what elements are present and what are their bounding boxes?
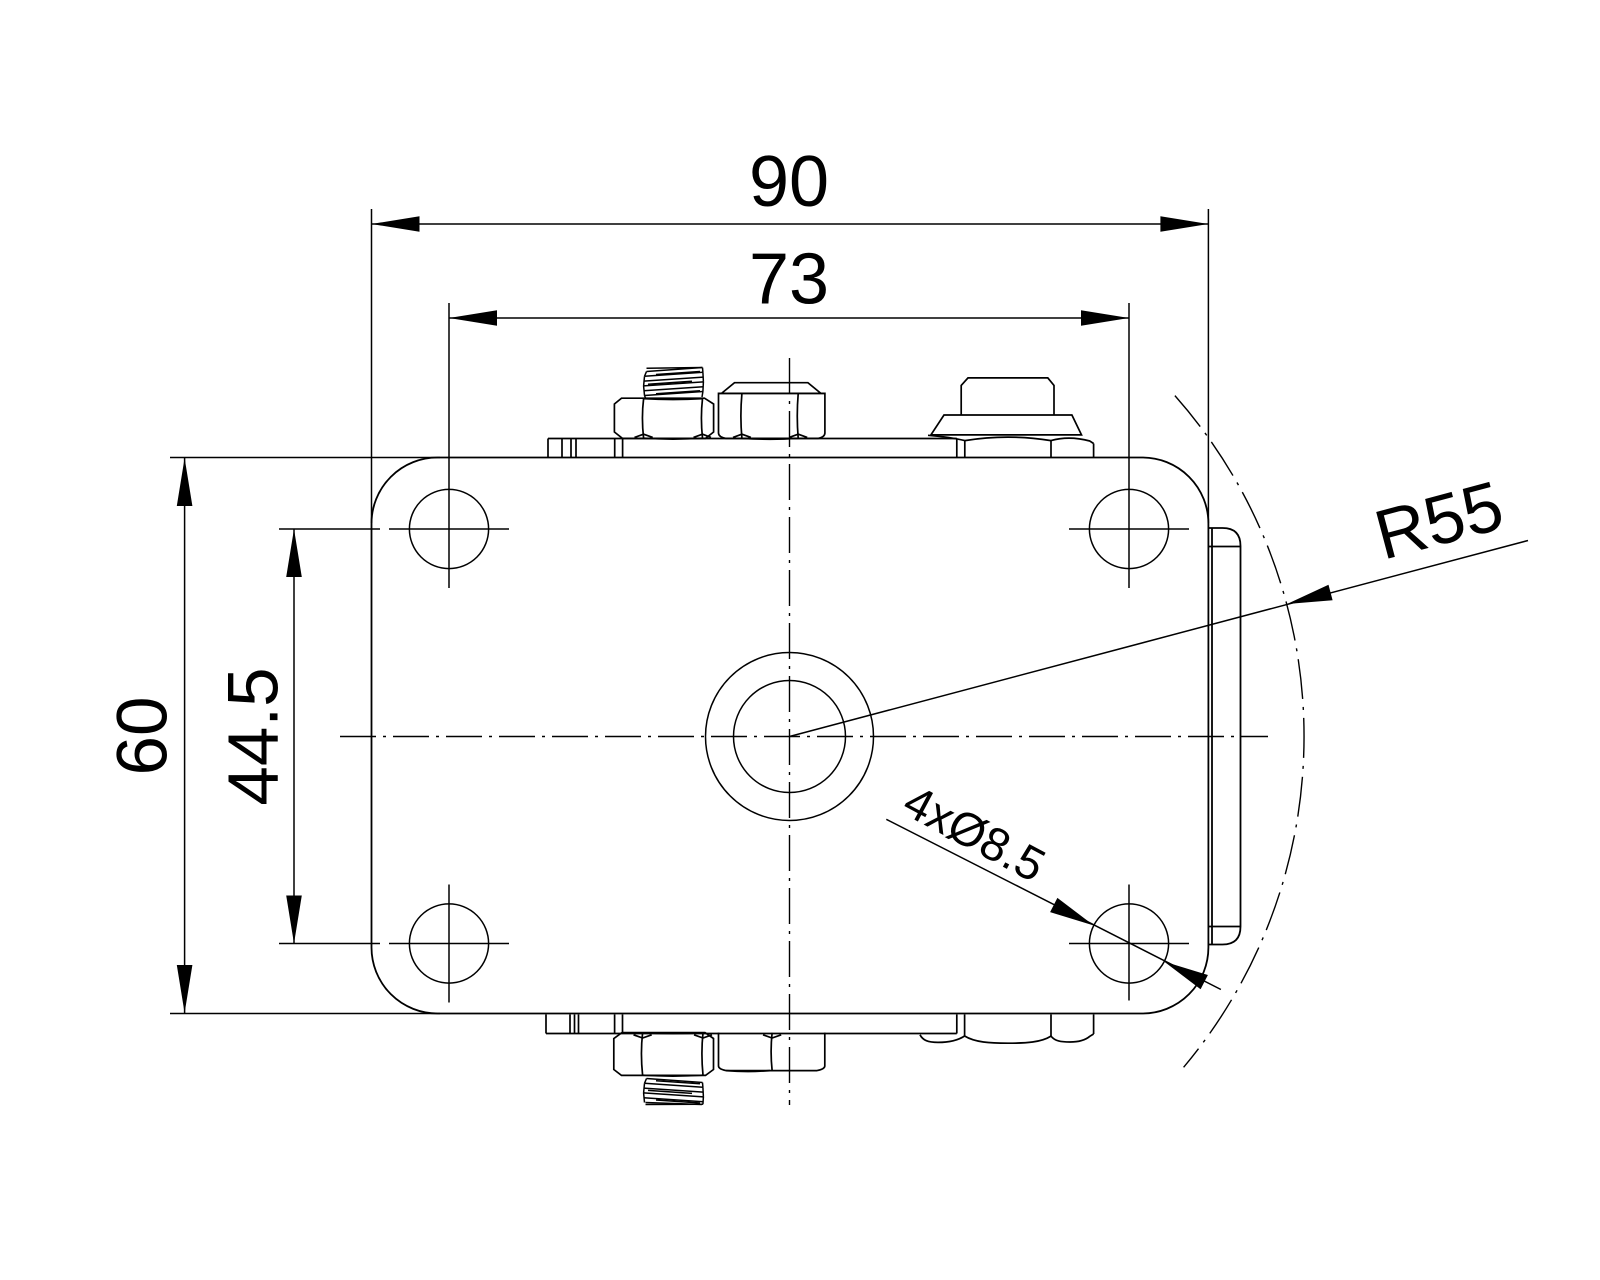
svg-text:60: 60 [104, 697, 183, 776]
svg-text:90: 90 [749, 142, 829, 222]
svg-text:73: 73 [749, 240, 829, 320]
svg-text:44.5: 44.5 [215, 667, 294, 805]
